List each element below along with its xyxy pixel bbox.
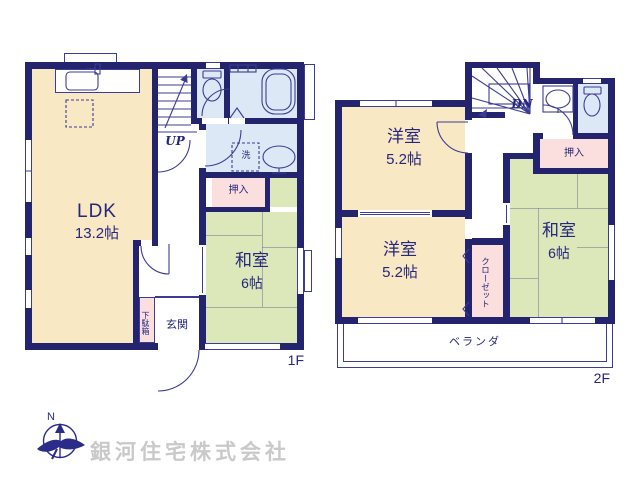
kitchen-sink-icon [66, 64, 100, 90]
stairs-up-label: UP [158, 135, 192, 148]
washbasin-icon-2f [543, 86, 573, 113]
closet-door-chevrons [463, 249, 469, 316]
door-arc-toilet-1f [202, 89, 229, 116]
closet-label-2f: クローゼット [481, 250, 490, 314]
room-label-washitsu-2f: 和室 [515, 222, 603, 240]
sliding-partition-lines [360, 213, 430, 215]
stairs-up-icon [158, 74, 197, 132]
room-area-yoshitsu-lower: 5.2帖 [356, 265, 444, 281]
room-label-washitsu-1f: 和室 [208, 252, 296, 270]
room-area-washitsu-2f: 6帖 [515, 246, 603, 261]
room-area-washitsu-1f: 6帖 [208, 276, 296, 291]
bathtub-icon [230, 65, 295, 114]
floorplan-page: LDK 13.2帖 和室 6帖 押入 洗 玄関 下駄箱 UP 1F 洋室 5.2… [0, 0, 640, 480]
compass-icon [37, 423, 85, 459]
refrigerator-space [66, 100, 93, 127]
room-label-yoshitsu-lower: 洋室 [356, 241, 444, 259]
room-label-yoshitsu-upper: 洋室 [360, 128, 448, 146]
stairs-down-label: DN [507, 98, 537, 111]
door-arc-ldk [141, 244, 169, 274]
room-area-ldk: 13.2帖 [55, 226, 139, 242]
closet-label-oshiire-2f: 押入 [540, 149, 608, 160]
laundry-label: 洗 [235, 151, 257, 160]
closet-label-oshiire-1f: 押入 [212, 186, 265, 197]
toilet-icon-2f [584, 87, 601, 116]
company-watermark: 銀河住宅株式会社 [90, 442, 380, 464]
genkan-label: 玄関 [156, 320, 198, 332]
room-label-ldk: LDK [55, 202, 139, 222]
room-area-yoshitsu-upper: 5.2帖 [360, 152, 448, 168]
compass-north-label: N [44, 412, 58, 424]
washbasin-icon-1f [263, 146, 295, 173]
shoe-cabinet-label: 下駄箱 [141, 301, 149, 345]
veranda-label: ベランダ [428, 337, 522, 349]
floor-label-2f: 2F [584, 371, 610, 386]
floor-label-1f: 1F [278, 353, 304, 368]
door-arc-washroom [205, 130, 241, 166]
bath-folding-door-icon [230, 108, 244, 118]
toilet-icon-1f [203, 71, 221, 101]
door-arc-front [158, 350, 199, 391]
